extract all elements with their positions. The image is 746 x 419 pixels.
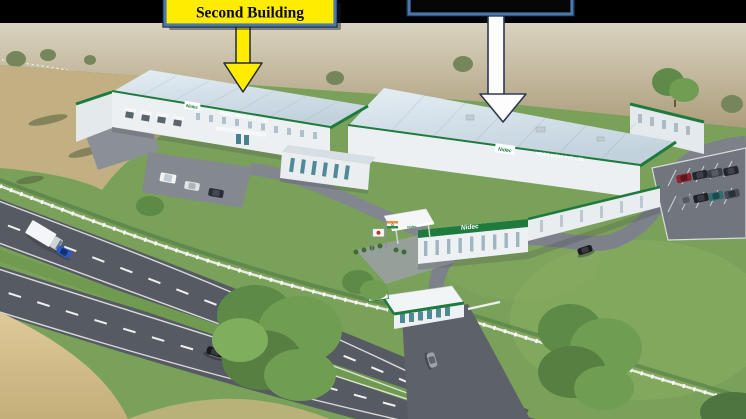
cropped-callout-box xyxy=(409,0,572,14)
yellow-arrow-stem xyxy=(236,25,250,65)
india-flag-icon xyxy=(387,221,398,229)
tree xyxy=(136,196,164,216)
barrier-post xyxy=(466,306,469,315)
japan-flag-icon xyxy=(373,229,384,237)
entrance-door xyxy=(244,135,249,145)
second-building-label: Second Building xyxy=(196,5,304,22)
site-rendering: Nidec NIDEC INDIA PVT. LTD. Nidec Nidec xyxy=(0,0,746,419)
top-crop-bar xyxy=(0,0,746,23)
entrance-door xyxy=(236,134,241,144)
white-arrow-stem xyxy=(488,12,504,96)
